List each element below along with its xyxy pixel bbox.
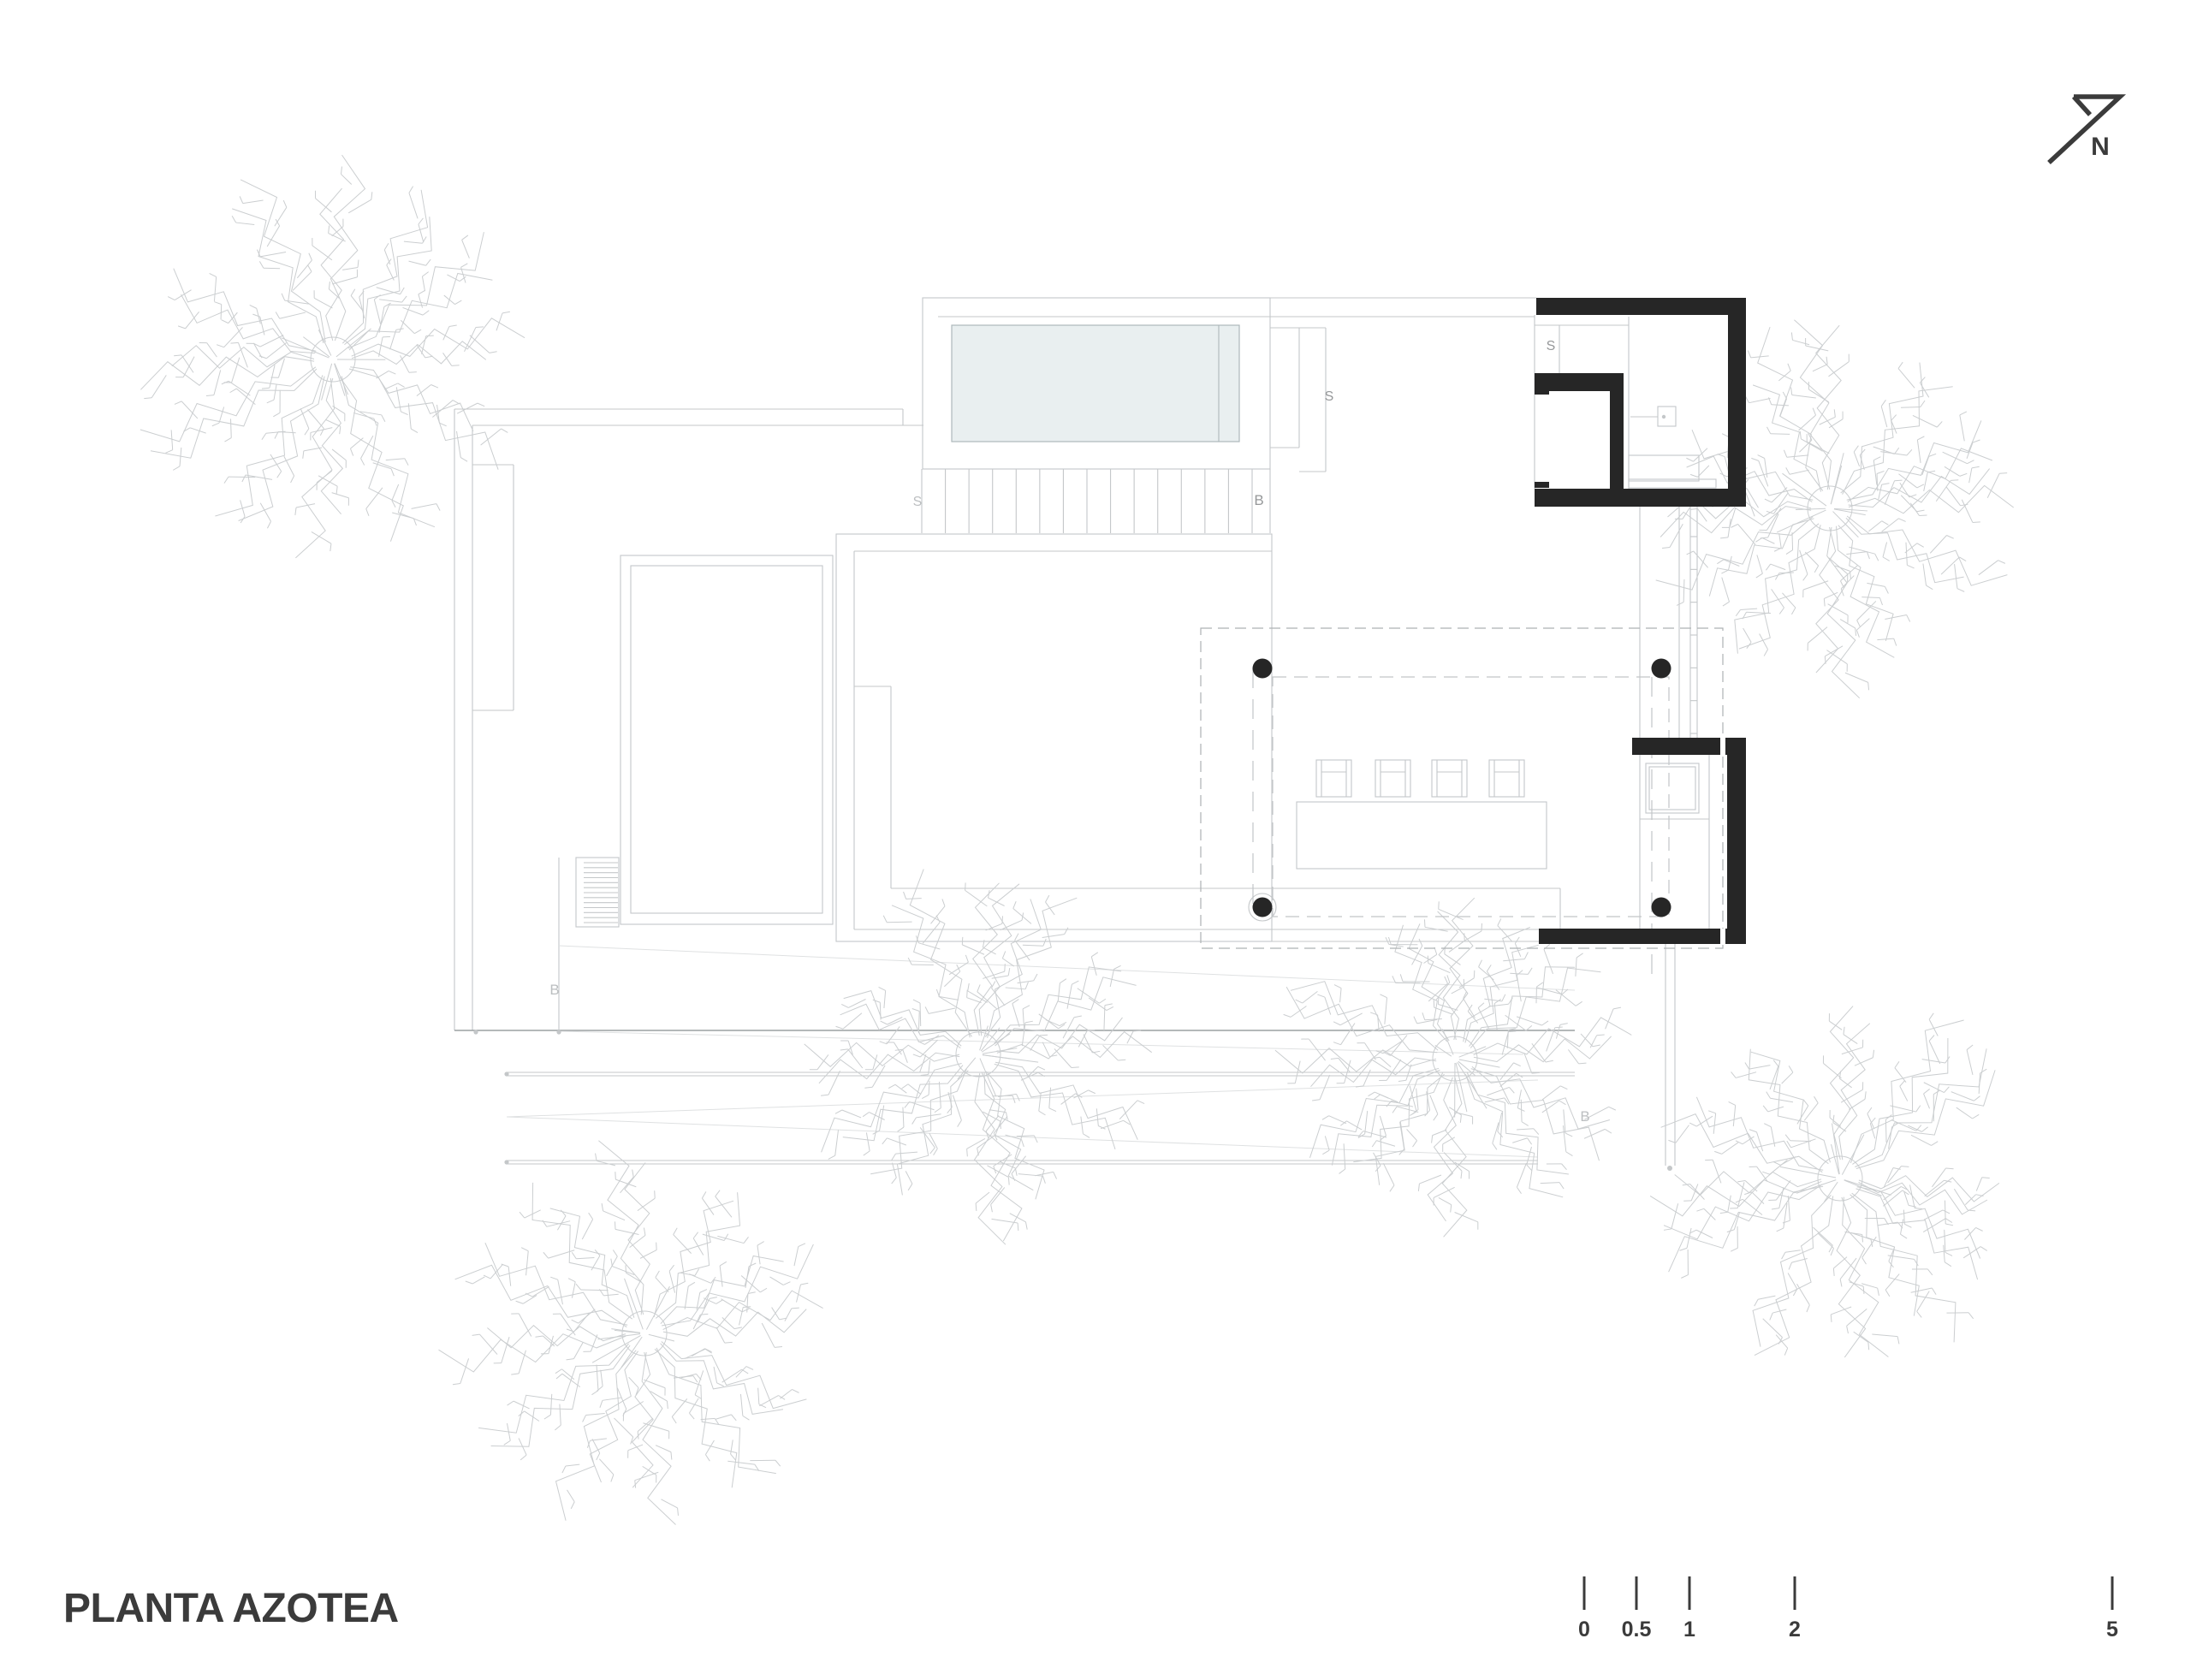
direction-label: B [549,982,559,998]
column [1253,898,1273,917]
sink [1646,763,1699,813]
chair [1375,760,1410,797]
dining-chairs [1316,760,1524,797]
column [1652,898,1671,917]
palm-tree [140,155,525,558]
left-wing-roof-outline [620,555,833,924]
direction-label: B [1580,1108,1589,1125]
roof-ladder [1690,507,1697,738]
dining-table [1297,802,1547,869]
palm-tree [1650,1006,1999,1357]
scale-tick-label: 0 [1578,1618,1590,1641]
chair [1316,760,1351,797]
palm-tree [805,870,1152,1245]
outdoor-dining-set [1297,760,1547,869]
pool-deck [923,298,1716,929]
vent-grate [576,858,619,927]
roof-plan-drawing: SSSBBB N 00.5125 [0,0,2191,1680]
skylight [1658,407,1676,426]
column [1253,659,1273,679]
scale-tick-label: 0.5 [1622,1618,1652,1641]
scale-tick-label: 2 [1789,1618,1801,1641]
direction-label: S [1547,339,1556,353]
north-label: N [2091,133,2110,161]
stair-treads [922,469,1252,533]
palm-tree [439,1141,823,1525]
scale-tick-label: 1 [1683,1618,1695,1641]
scale-bar: 00.5125 [1578,1576,2118,1641]
scale-tick-label: 5 [2106,1618,2118,1641]
black-walls [1249,298,1746,944]
drawing-title: PLANTA AZOTEA [63,1585,399,1632]
palm-tree [1656,320,2014,698]
pool [952,325,1239,442]
chair [1489,760,1524,797]
direction-label: S [913,495,923,509]
direction-label: S [1325,389,1334,404]
main-roof-outline [836,534,1560,941]
direction-label: B [1254,492,1263,508]
palm-tree [1275,898,1631,1237]
north-arrow-icon: N [2049,97,2120,163]
site-outline-lines [454,409,923,1030]
chair [1432,760,1467,797]
column [1652,659,1671,679]
floor-plan-canvas: SSSBBB N 00.5125 PLANTA AZOTEA [0,0,2191,1680]
